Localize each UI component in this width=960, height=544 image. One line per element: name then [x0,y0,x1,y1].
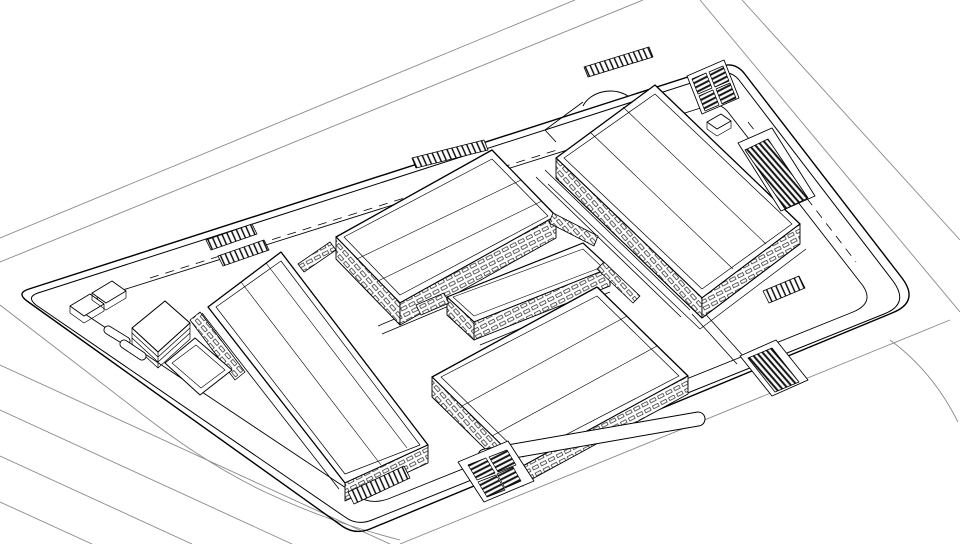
road-bottom-lane-4 [0,502,92,544]
rooftop-cube-top [707,114,731,129]
building-1-parapet-step [545,102,583,142]
street-b4-b1-2 [692,314,737,364]
road-right-curve [890,340,958,422]
bridge-b2-b5 [298,242,336,272]
building-6-roof [132,301,190,352]
building-1-stair-apron [763,276,805,303]
road-bottom-lane-2 [0,410,292,544]
ground-island-1-fill [108,330,126,341]
ground-island-2-fill [124,344,142,356]
road-bottom-lane-3 [0,456,192,544]
building-1-top-ladder-strip [584,47,653,77]
street-b4-b1-1 [700,308,745,358]
site-plan-svg [0,0,960,544]
site-plan-drawing [0,0,960,544]
